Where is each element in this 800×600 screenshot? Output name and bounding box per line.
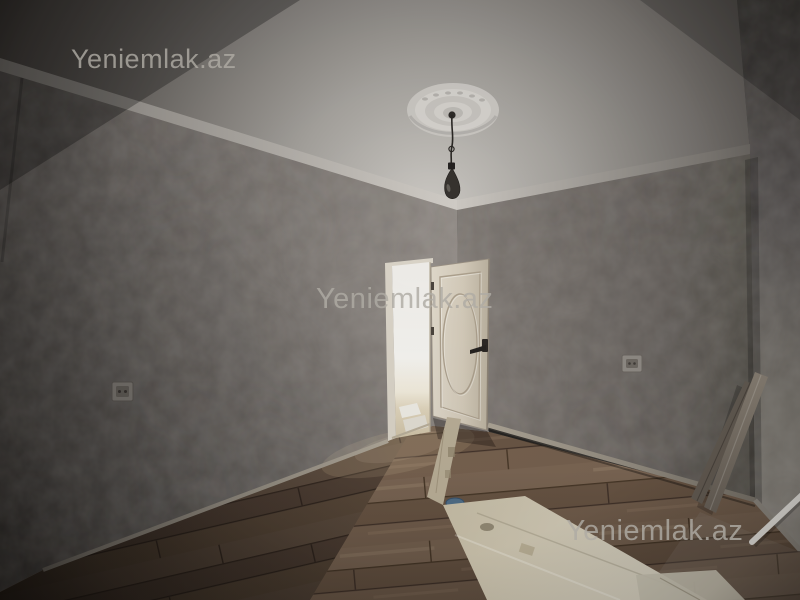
watermark-center: Yeniemlak.az [316,283,493,316]
watermark-top-left: Yeniemlak.az [71,44,237,75]
watermark-bottom-right: Yeniemlak.az [566,515,743,548]
room-photo: Yeniemlak.az Yeniemlak.az Yeniemlak.az [0,0,800,600]
